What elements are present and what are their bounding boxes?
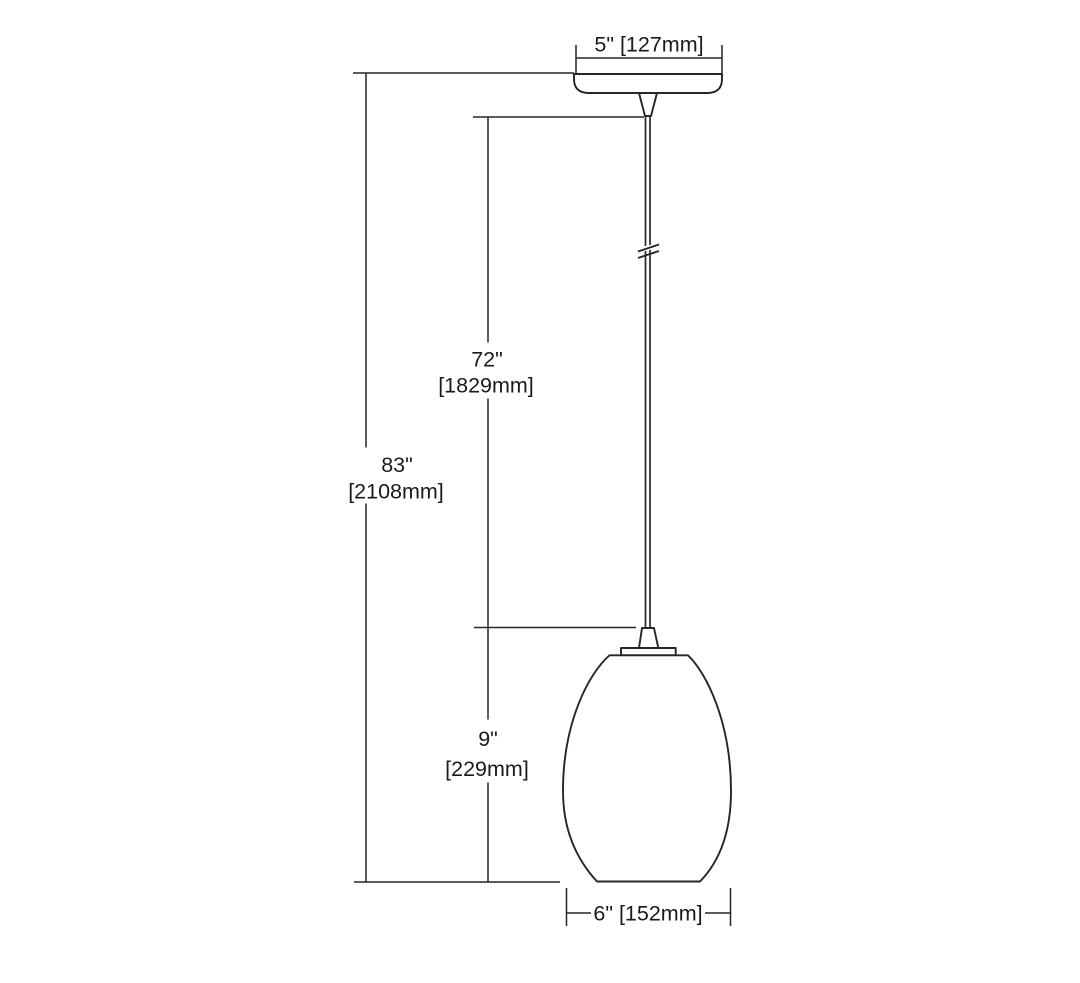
canopy-outline xyxy=(574,74,722,93)
shade-socket xyxy=(639,628,658,648)
cord-line xyxy=(646,116,651,628)
cord-drop-label-mm: [1829mm] xyxy=(438,374,534,398)
cord-break-icon xyxy=(638,245,659,259)
dim-shade-height: 9" [229mm] xyxy=(445,628,529,883)
shade-height-label-inches: 9" xyxy=(478,727,498,751)
overall-height-label-mm: [2108mm] xyxy=(348,480,444,504)
pendant-dimension-drawing: 5" [127mm] 83" [2108mm] 72" [1829mm] 9" … xyxy=(0,0,1080,983)
shade-outline xyxy=(563,655,731,881)
canopy-stem xyxy=(639,93,657,116)
cord-drop-label-inches: 72" xyxy=(471,348,503,372)
canopy-width-label: 5" [127mm] xyxy=(594,33,703,57)
diagram-canvas: 5" [127mm] 83" [2108mm] 72" [1829mm] 9" … xyxy=(0,0,1080,983)
overall-height-label-inches: 83" xyxy=(381,453,413,477)
shade-width-label: 6" [152mm] xyxy=(593,902,702,926)
dim-canopy-width: 5" [127mm] xyxy=(576,33,722,75)
dim-shade-width: 6" [152mm] xyxy=(567,888,731,926)
fixture xyxy=(563,74,731,882)
shade-height-label-mm: [229mm] xyxy=(445,757,529,781)
dim-cord-drop: 72" [1829mm] xyxy=(438,117,644,628)
shade-cap xyxy=(621,648,676,655)
